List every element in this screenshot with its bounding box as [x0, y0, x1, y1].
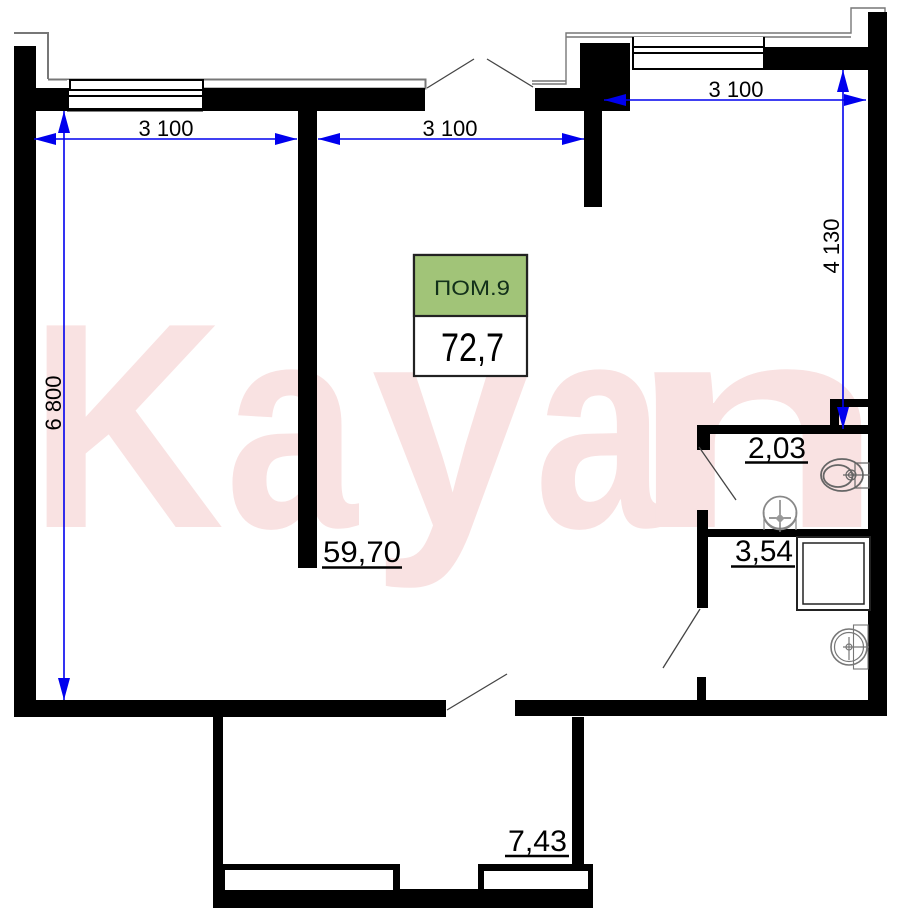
svg-text:3,54: 3,54 [735, 535, 793, 568]
svg-text:3 100: 3 100 [138, 116, 193, 141]
svg-text:3 100: 3 100 [708, 77, 763, 102]
svg-text:7,43: 7,43 [508, 825, 567, 858]
svg-text:6 800: 6 800 [41, 375, 66, 430]
svg-text:72,7: 72,7 [441, 326, 504, 370]
svg-text:3 100: 3 100 [422, 116, 477, 141]
svg-text:ПОМ.9: ПОМ.9 [434, 276, 510, 300]
svg-text:2,03: 2,03 [748, 432, 806, 465]
svg-text:4 130: 4 130 [819, 218, 844, 273]
svg-text:59,70: 59,70 [323, 536, 401, 569]
